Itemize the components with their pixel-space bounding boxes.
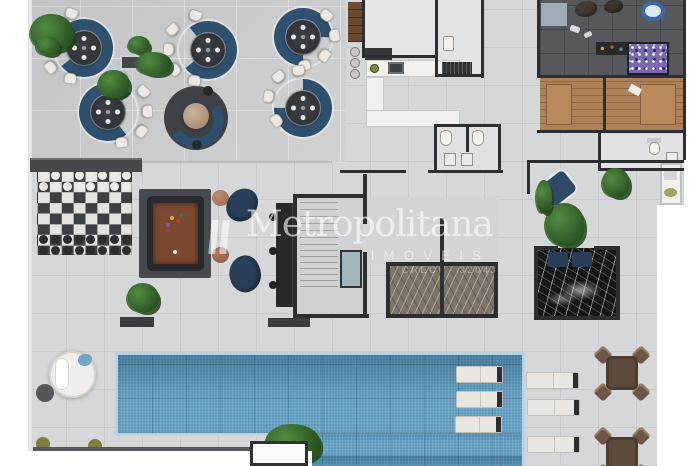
wet-deck-lounger bbox=[456, 366, 503, 383]
plant bbox=[127, 283, 159, 313]
floorplan-canvas: Metropolitana IMÓVEIS CRECI - 3204J bbox=[0, 0, 700, 466]
spa-mat bbox=[572, 252, 592, 267]
chess-pieces-white-row bbox=[39, 171, 48, 180]
plant bbox=[545, 203, 585, 247]
stool bbox=[203, 86, 213, 96]
roof-overhang bbox=[30, 158, 142, 172]
play-mat bbox=[541, 3, 567, 26]
chess-board bbox=[37, 170, 132, 255]
wall bbox=[498, 124, 501, 172]
sun-lounger bbox=[527, 436, 580, 453]
wall bbox=[537, 130, 686, 133]
kitchen-bowl bbox=[370, 64, 379, 73]
wall bbox=[598, 133, 601, 170]
plant bbox=[98, 70, 130, 98]
wall bbox=[340, 170, 406, 173]
kiddie-pool bbox=[641, 1, 665, 21]
patio-table bbox=[606, 356, 638, 390]
chair bbox=[114, 136, 128, 149]
bar-cabinet bbox=[348, 2, 363, 42]
wall bbox=[362, 55, 438, 58]
stool bbox=[269, 281, 277, 289]
pool-coping bbox=[522, 352, 525, 466]
spa-wall bbox=[616, 246, 620, 320]
chair bbox=[187, 74, 201, 87]
sun-lounger bbox=[527, 399, 580, 416]
chess-pieces-white-row bbox=[39, 182, 48, 191]
plant bbox=[136, 52, 172, 76]
patio-table-set bbox=[598, 431, 646, 466]
toy-counter bbox=[596, 42, 628, 55]
bar-stool bbox=[350, 58, 360, 68]
dining-booth bbox=[268, 2, 338, 72]
watermark-logo-icon bbox=[208, 220, 219, 254]
spa-wall bbox=[534, 316, 620, 320]
cabinet-shelf bbox=[664, 170, 677, 180]
kitchen-sink bbox=[388, 62, 404, 74]
watermark-license: CRECI - 3204J bbox=[402, 265, 498, 276]
margin-left bbox=[0, 0, 28, 466]
margin-right-notch bbox=[684, 160, 700, 205]
wall bbox=[537, 75, 686, 78]
pool-coping bbox=[115, 352, 525, 355]
watermark-brand: Metropolitana bbox=[246, 204, 493, 245]
stool bbox=[192, 140, 202, 150]
plant bbox=[128, 36, 150, 54]
watermark-subtitle: IMÓVEIS bbox=[371, 248, 490, 263]
bench bbox=[268, 318, 310, 327]
wall bbox=[603, 78, 606, 133]
plant bbox=[602, 168, 630, 198]
ball-pit bbox=[627, 42, 669, 75]
plant bbox=[36, 36, 60, 56]
wall bbox=[537, 0, 540, 78]
billiards-felt bbox=[153, 203, 198, 264]
chair bbox=[262, 89, 275, 104]
patio-table bbox=[606, 437, 638, 466]
wall bbox=[466, 124, 469, 152]
wall bbox=[434, 124, 437, 172]
chair bbox=[291, 64, 305, 76]
wall bbox=[362, 0, 365, 58]
wall bbox=[435, 0, 438, 77]
patio-table-set bbox=[598, 350, 646, 397]
wc-sink bbox=[444, 153, 456, 166]
wet-deck-lounger bbox=[456, 391, 503, 408]
cabinet-plant bbox=[664, 188, 677, 197]
sauna-1-bench bbox=[546, 84, 572, 125]
wc-sink bbox=[461, 153, 473, 166]
pool-water-lower bbox=[310, 433, 522, 466]
toilet bbox=[649, 142, 660, 155]
elevator-wall bbox=[386, 314, 498, 318]
plant bbox=[536, 180, 552, 214]
wall bbox=[481, 0, 484, 78]
stairwell-wall bbox=[293, 194, 367, 198]
wet-deck-lounger bbox=[455, 416, 502, 433]
pool-coping bbox=[115, 352, 118, 436]
chair bbox=[328, 28, 341, 43]
chess-pieces-black-row bbox=[39, 235, 48, 244]
chess-pieces-black-row bbox=[39, 246, 48, 255]
spa-wall bbox=[534, 246, 538, 320]
toilet bbox=[440, 130, 452, 146]
dining-table bbox=[191, 33, 225, 67]
lounge-edge bbox=[140, 161, 332, 163]
bar-stool bbox=[350, 47, 360, 57]
sun-lounger bbox=[526, 372, 579, 389]
dining-table bbox=[286, 91, 320, 125]
daybed-cushion bbox=[55, 358, 69, 390]
dining-booth bbox=[173, 15, 243, 85]
wall bbox=[428, 170, 503, 173]
pergola-roof bbox=[250, 441, 308, 466]
toilet bbox=[472, 130, 484, 146]
margin-right-lower bbox=[657, 205, 700, 466]
wall bbox=[527, 160, 686, 163]
sauna-2-bench bbox=[640, 84, 676, 125]
stone-coffee-table bbox=[183, 103, 209, 129]
kitchen-cooktop bbox=[365, 48, 392, 60]
service-sink bbox=[443, 36, 454, 51]
chair bbox=[142, 105, 154, 119]
dining-booth bbox=[268, 73, 338, 143]
gray-pouf bbox=[36, 384, 54, 402]
dining-table bbox=[91, 95, 125, 129]
spa-mat bbox=[548, 252, 568, 267]
bar-stool bbox=[350, 69, 360, 79]
dining-table bbox=[286, 20, 320, 54]
wall bbox=[438, 74, 484, 77]
wall bbox=[363, 174, 367, 198]
watermark: Metropolitana IMÓVEIS CRECI - 3204J bbox=[204, 204, 504, 278]
billiard-balls bbox=[170, 216, 174, 220]
watermark-logo-icon bbox=[219, 220, 230, 254]
wall bbox=[527, 160, 530, 194]
west-boundary bbox=[28, 0, 32, 452]
bench bbox=[120, 317, 154, 327]
